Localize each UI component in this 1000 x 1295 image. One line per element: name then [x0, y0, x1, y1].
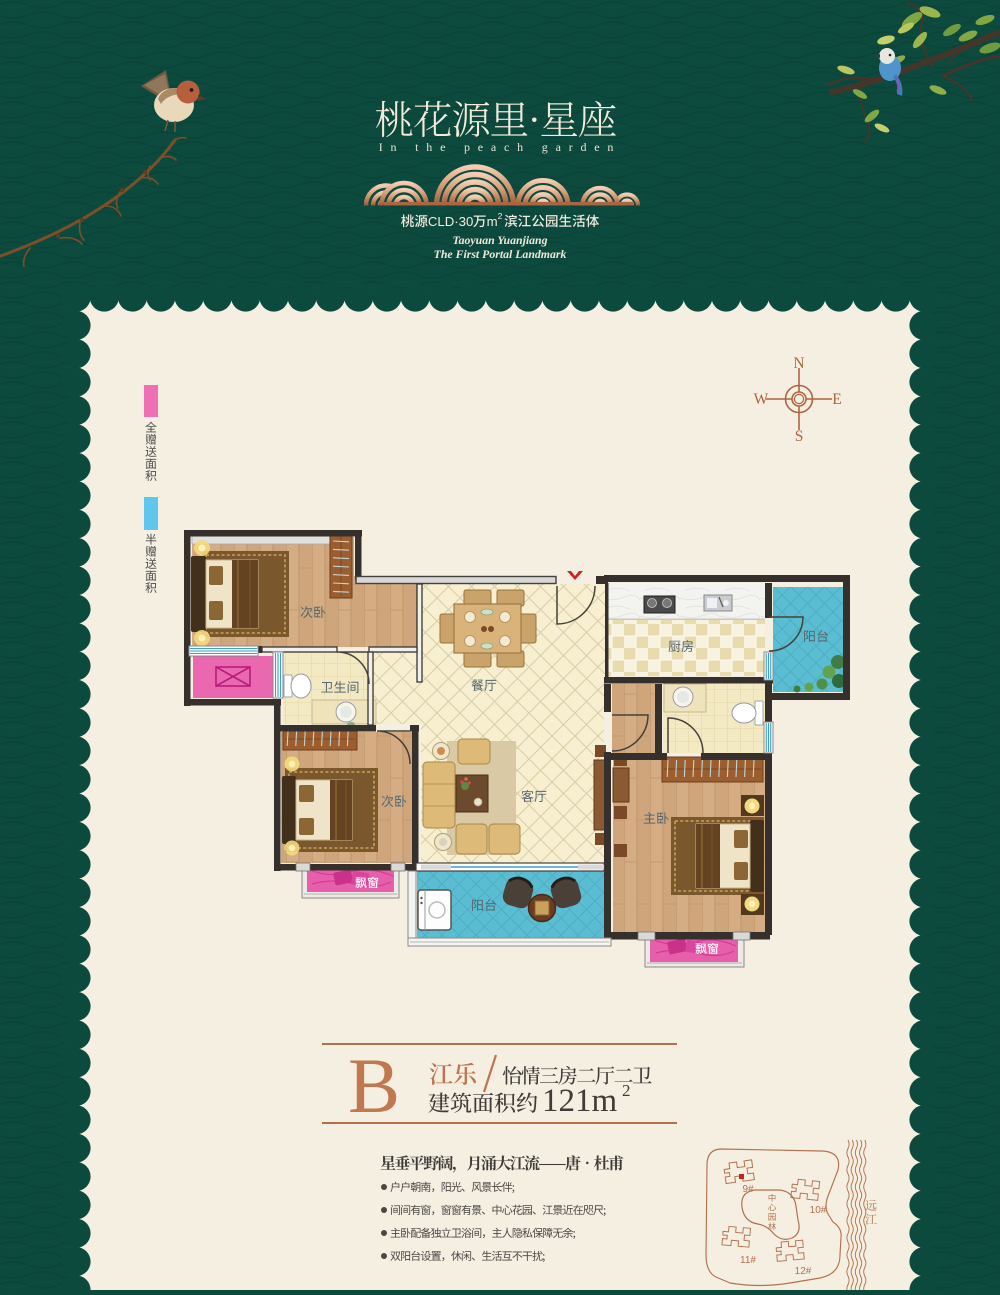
svg-text:10#: 10#: [810, 1205, 827, 1216]
svg-text:E: E: [832, 391, 841, 408]
svg-text:B: B: [348, 1042, 400, 1129]
svg-text:12#: 12#: [795, 1266, 812, 1277]
svg-text:CLD·30: CLD·30: [428, 214, 473, 229]
svg-text:m: m: [487, 214, 498, 229]
svg-text:2: 2: [622, 1081, 631, 1100]
svg-text:The First Portal Landmark: The First Portal Landmark: [434, 247, 567, 261]
svg-text:S: S: [795, 428, 804, 445]
svg-text:9#: 9#: [742, 1184, 754, 1195]
svg-text:121m: 121m: [542, 1083, 618, 1119]
svg-text:W: W: [754, 391, 769, 408]
svg-text:2: 2: [498, 211, 503, 221]
svg-text:Taoyuan Yuanjiang: Taoyuan Yuanjiang: [453, 233, 548, 247]
svg-text:N: N: [793, 355, 804, 372]
svg-text:In the peach garden: In the peach garden: [379, 140, 621, 154]
svg-text:11#: 11#: [740, 1255, 756, 1266]
